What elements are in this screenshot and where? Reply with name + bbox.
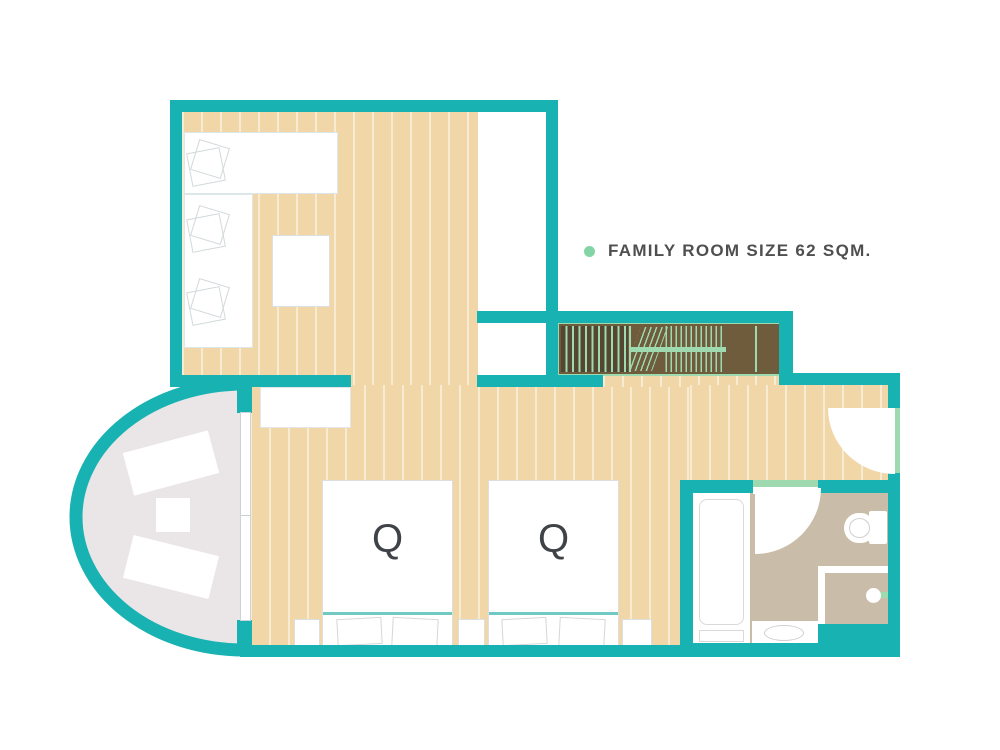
- wall-closet-bottom-left: [477, 375, 603, 387]
- bed-size-label: Q: [489, 517, 618, 562]
- wall-living-left: [170, 100, 182, 387]
- wardrobe-shelves: [561, 326, 628, 372]
- balcony-side-table: [156, 498, 190, 532]
- wall-shower-corner: [818, 624, 900, 657]
- legend: FAMILY ROOM SIZE 62 SQM.: [584, 241, 872, 261]
- floor-plan: Q Q: [0, 0, 1000, 750]
- chair-cushion: [186, 286, 226, 326]
- nightstand-right: [622, 619, 652, 647]
- shaft-void-upper: [478, 112, 546, 311]
- living-chair-3: [185, 279, 233, 327]
- bed-size-label: Q: [323, 517, 452, 562]
- legend-label: FAMILY ROOM SIZE 62 SQM.: [608, 241, 872, 261]
- bed-queen-2: Q: [488, 480, 619, 648]
- bathtub-basin: [699, 499, 744, 625]
- balcony-door-jamb-top: [237, 383, 252, 413]
- pillow: [336, 617, 382, 646]
- balcony-sliding-door: [240, 412, 251, 621]
- wall-right-upper: [888, 373, 900, 410]
- bathtub-step: [699, 630, 744, 642]
- balcony-door-jamb-bottom: [237, 620, 252, 651]
- chair-cushion: [186, 213, 226, 253]
- pillow: [558, 617, 605, 648]
- chair-cushion: [186, 147, 226, 187]
- wall-bathroom-left: [680, 480, 693, 655]
- bedroom-console: [260, 387, 351, 428]
- wardrobe-divider-2: [755, 326, 757, 372]
- shower-head: [866, 588, 881, 603]
- living-table: [272, 235, 330, 307]
- bed-headboard-line: [489, 612, 618, 615]
- wall-living-right: [546, 100, 558, 377]
- pillow: [391, 617, 438, 648]
- wall-closet-top: [477, 311, 793, 323]
- nightstand-left: [294, 619, 320, 647]
- shower-screen-top: [818, 566, 890, 573]
- shower-screen-left: [818, 566, 825, 628]
- toilet-seat: [849, 518, 870, 538]
- wardrobe-rail: [631, 347, 726, 352]
- wall-entry-top: [779, 373, 900, 385]
- sink-basin: [764, 625, 804, 641]
- living-chair-1: [185, 140, 233, 188]
- sliding-door-divider: [241, 515, 250, 516]
- wall-living-bottom: [170, 375, 351, 387]
- bed-headboard-line: [323, 612, 452, 615]
- living-chair-2: [185, 206, 233, 254]
- wall-living-top: [170, 100, 558, 112]
- wardrobe-divider-1: [629, 326, 631, 372]
- pillow: [501, 617, 547, 646]
- legend-bullet-icon: [584, 246, 595, 257]
- nightstand-middle: [458, 619, 485, 647]
- bathroom-door-threshold: [753, 480, 818, 487]
- bed-queen-1: Q: [322, 480, 453, 648]
- shaft-void-lower: [478, 323, 546, 375]
